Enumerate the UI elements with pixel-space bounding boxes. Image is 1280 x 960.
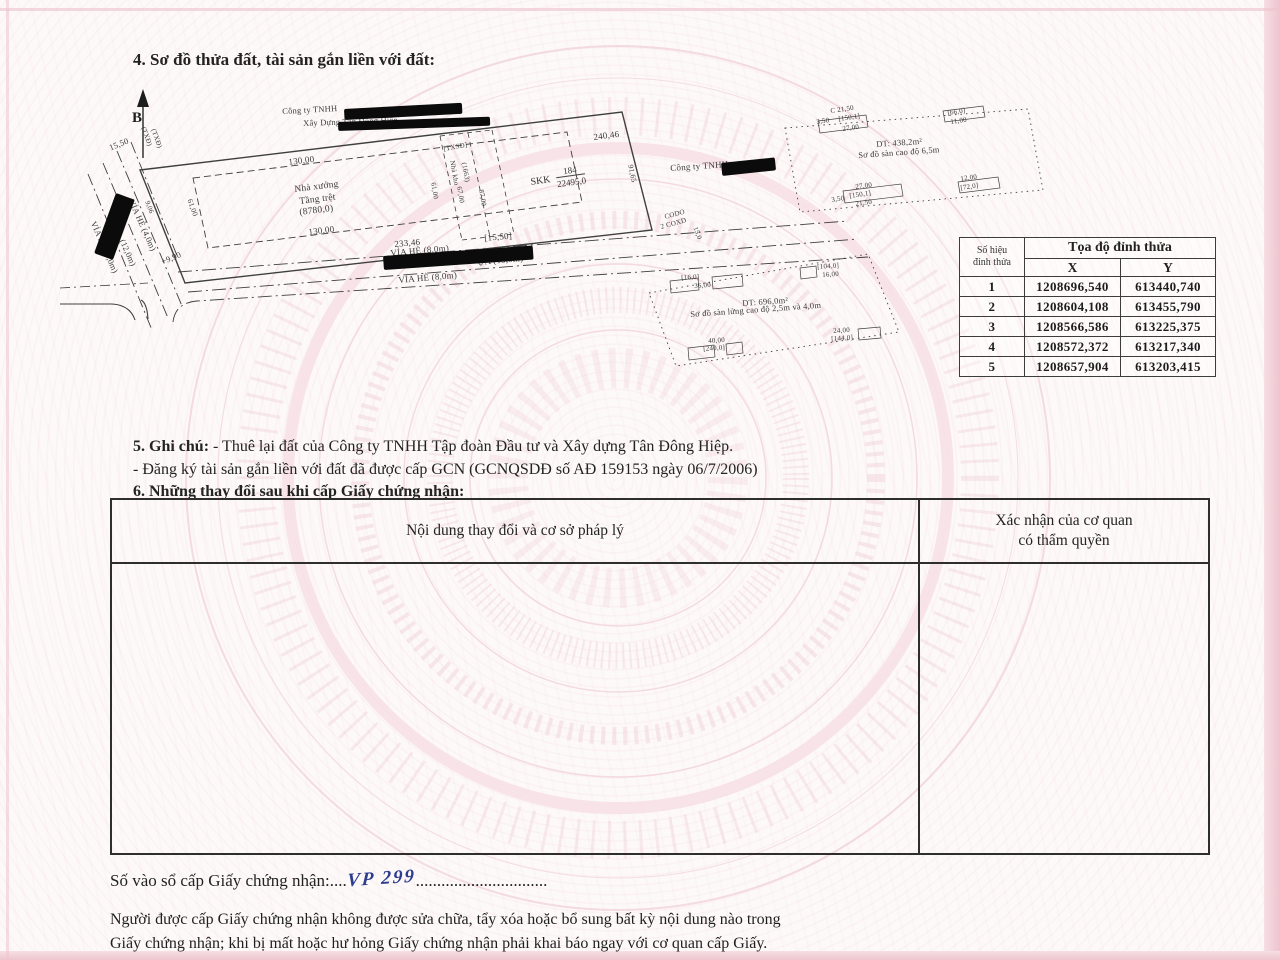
coord-cell-y: 613225,375 <box>1121 317 1216 337</box>
coord-table-corner: Số hiệu đỉnh thửa <box>960 238 1025 277</box>
registry-dots: .... <box>330 871 347 890</box>
coord-cell-n: 1 <box>960 277 1025 297</box>
registry-number-line: Số vào sổ cấp Giấy chứng nhận:....VP 299… <box>110 870 547 892</box>
coord-row: 31208566,586613225,375 <box>960 317 1216 337</box>
north-arrow-head <box>137 89 149 107</box>
changes-table-divider <box>918 562 920 853</box>
coord-row: 41208572,372613217,340 <box>960 337 1216 357</box>
coord-row: 11208696,540613440,740 <box>960 277 1216 297</box>
registry-dots: ............................... <box>416 871 548 890</box>
registry-label: Số vào sổ cấp Giấy chứng nhận: <box>110 871 330 890</box>
coord-cell-x: 1208604,108 <box>1025 297 1121 317</box>
coord-cell-y: 613440,740 <box>1121 277 1216 297</box>
coord-cell-y: 613455,790 <box>1121 297 1216 317</box>
coord-table-x-header: X <box>1025 259 1121 277</box>
coord-cell-n: 4 <box>960 337 1025 357</box>
note-line-2: - Đăng ký tài sản gắn liền với đất đã đư… <box>133 459 1193 482</box>
junction-curves <box>60 283 148 320</box>
coord-table-header: Tọa độ đỉnh thửa <box>1025 238 1216 259</box>
map-dimension-label: 87,00 <box>477 189 487 207</box>
coord-cell-x: 1208696,540 <box>1025 277 1121 297</box>
coord-cell-x: 1208657,904 <box>1025 357 1121 377</box>
footer-line-2: Giấy chứng nhận; khi bị mất hoặc hư hỏng… <box>110 932 1190 956</box>
coord-table-y-header: Y <box>1121 259 1216 277</box>
map-dimension-label: 67,00 <box>455 186 465 204</box>
notes-text-1: - Thuê lại đất của Công ty TNHH Tập đoàn… <box>213 438 733 455</box>
coord-cell-x: 1208572,372 <box>1025 337 1121 357</box>
scanned-land-certificate-page: { "document": { "section4_title": "4. Sơ… <box>0 0 1280 960</box>
map-dimension-label: 16,00 <box>822 271 839 279</box>
coord-cell-x: 1208566,586 <box>1025 317 1121 337</box>
coord-cell-y: 613217,340 <box>1121 337 1216 357</box>
vertex-coordinate-table: Số hiệu đỉnh thửa Tọa độ đỉnh thửa X Y 1… <box>959 237 1216 377</box>
changes-table: Nội dung thay đổi và cơ sở pháp lý Xác n… <box>110 498 1210 855</box>
factory-building-outline <box>193 132 582 248</box>
coord-cell-n: 2 <box>960 297 1025 317</box>
notes-label: 5. Ghi chú: <box>133 438 209 455</box>
north-label: B <box>132 110 142 127</box>
footer-line-1: Người được cấp Giấy chứng nhận không đượ… <box>110 908 1190 932</box>
changes-col2-header: Xác nhận của cơ quan có thẩm quyền <box>918 500 1208 562</box>
map-dimension-label: 36,00 <box>694 282 711 290</box>
note-line-1: 5. Ghi chú: - Thuê lại đất của Công ty T… <box>133 436 1193 459</box>
changes-col1-header: Nội dung thay đổi và cơ sở pháp lý <box>112 500 918 562</box>
notes-section: 5. Ghi chú: - Thuê lại đất của Công ty T… <box>133 436 1193 504</box>
coord-row: 51208657,904613203,415 <box>960 357 1216 377</box>
map-dimension-label: 61,00 <box>429 182 439 200</box>
section4-title: 4. Sơ đồ thửa đất, tài sản gắn liền với … <box>133 50 435 70</box>
coord-cell-n: 5 <box>960 357 1025 377</box>
changes-table-header: Nội dung thay đổi và cơ sở pháp lý Xác n… <box>112 500 1208 564</box>
coord-cell-n: 3 <box>960 317 1025 337</box>
registry-handwritten-value: VP 299 <box>346 866 416 893</box>
footer-notice: Người được cấp Giấy chứng nhận không đượ… <box>110 908 1190 955</box>
coord-cell-y: 613203,415 <box>1121 357 1216 377</box>
coord-row: 21208604,108613455,790 <box>960 297 1216 317</box>
parcel-skk-label: SKK <box>530 174 551 188</box>
